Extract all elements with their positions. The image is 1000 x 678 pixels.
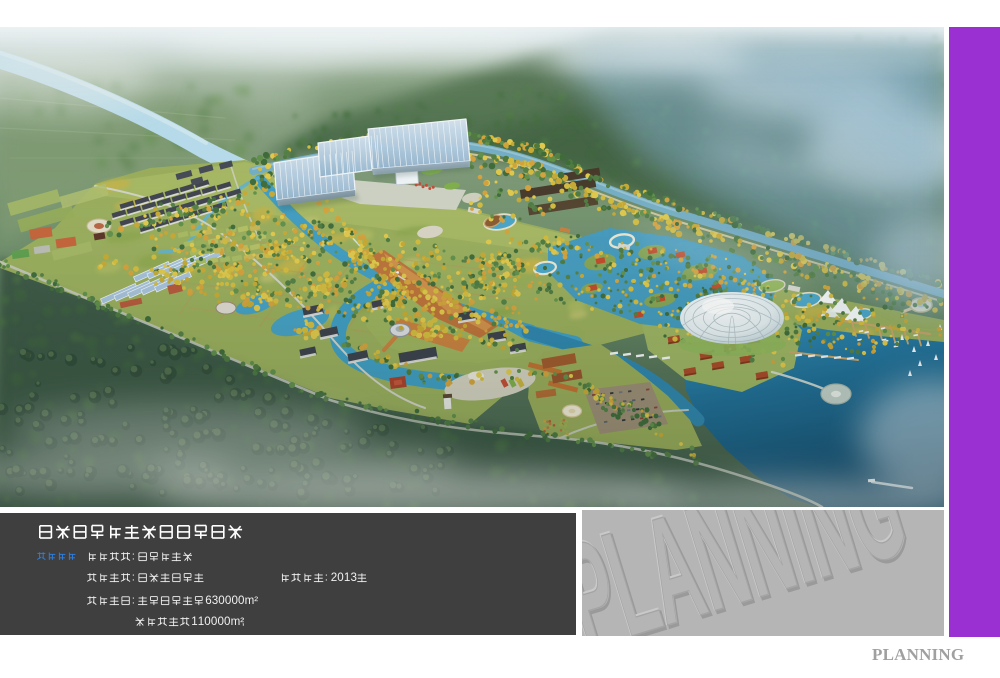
svg-text:1: 1: [344, 571, 350, 584]
svg-text:m²: m²: [245, 594, 259, 607]
svg-text::: :: [325, 572, 328, 584]
svg-text:0: 0: [232, 594, 238, 607]
svg-text:6: 6: [205, 594, 211, 607]
svg-text:3: 3: [212, 594, 218, 607]
svg-text:0: 0: [337, 571, 343, 584]
svg-text:1: 1: [191, 615, 197, 628]
svg-text:1: 1: [198, 615, 204, 628]
svg-text:0: 0: [238, 594, 244, 607]
svg-text:0: 0: [211, 615, 217, 628]
svg-text:0: 0: [225, 594, 231, 607]
svg-text:2: 2: [331, 571, 337, 584]
svg-text:0: 0: [224, 615, 230, 628]
svg-text:0: 0: [218, 615, 224, 628]
svg-text::: :: [132, 595, 135, 607]
svg-text::: :: [132, 551, 135, 563]
svg-text:PLANNING: PLANNING: [872, 645, 964, 664]
svg-text:;: ;: [242, 616, 245, 628]
svg-text::: :: [132, 572, 135, 584]
svg-text:0: 0: [204, 615, 210, 628]
svg-text:3: 3: [351, 571, 357, 584]
svg-text:0: 0: [218, 594, 224, 607]
